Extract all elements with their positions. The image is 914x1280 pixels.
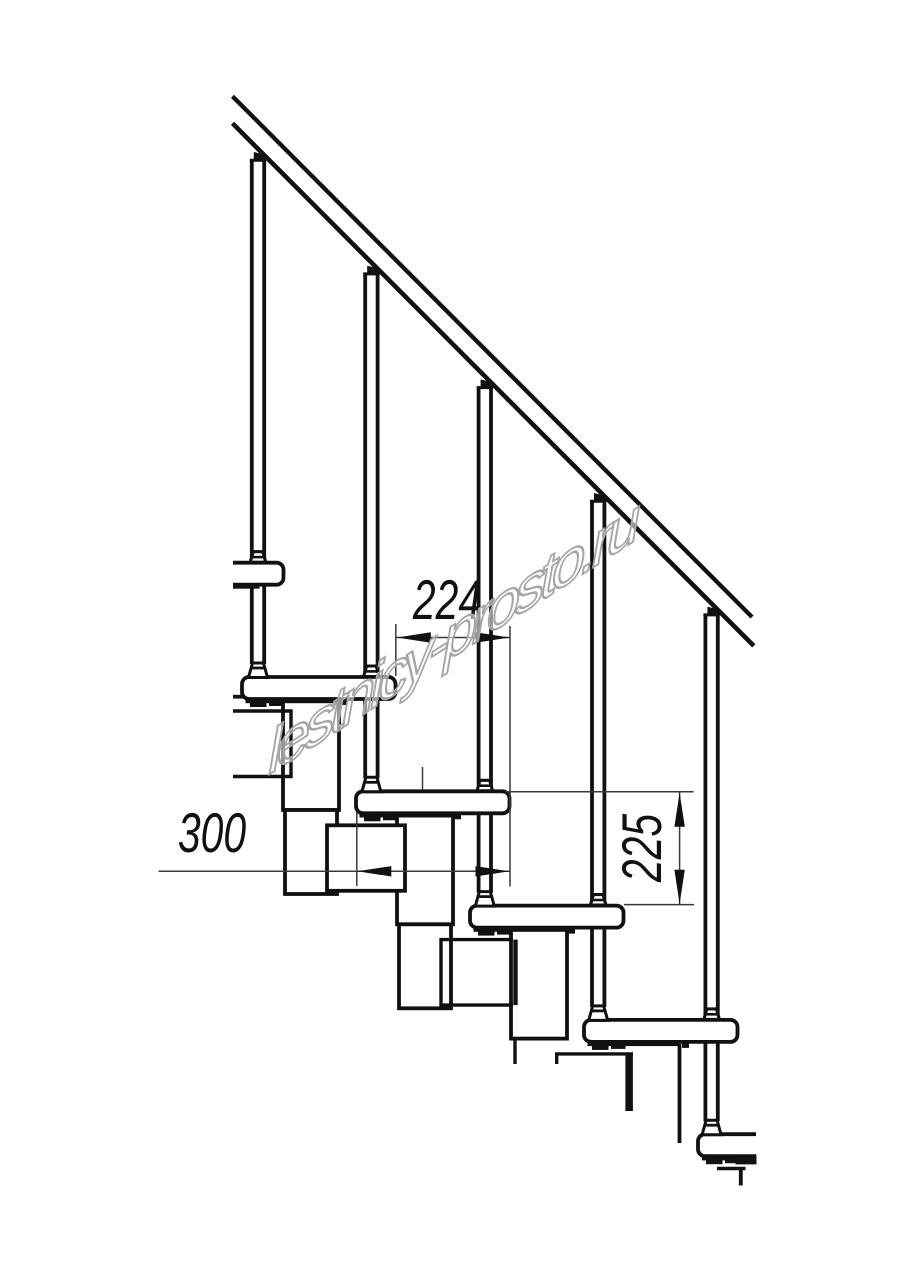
svg-text:225: 225 [610, 813, 673, 883]
svg-text:300: 300 [178, 801, 246, 864]
